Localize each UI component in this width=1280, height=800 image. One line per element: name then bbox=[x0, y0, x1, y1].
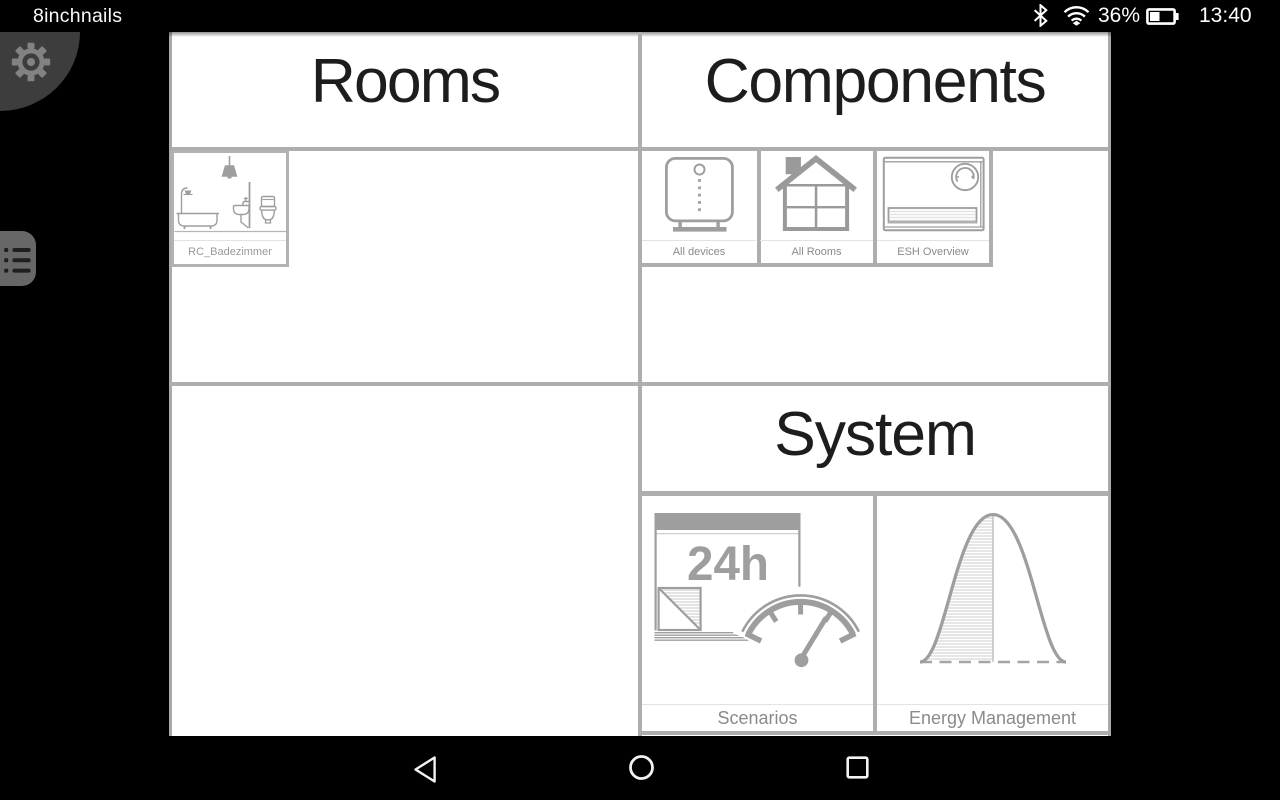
svg-text:24h: 24h bbox=[687, 537, 769, 591]
